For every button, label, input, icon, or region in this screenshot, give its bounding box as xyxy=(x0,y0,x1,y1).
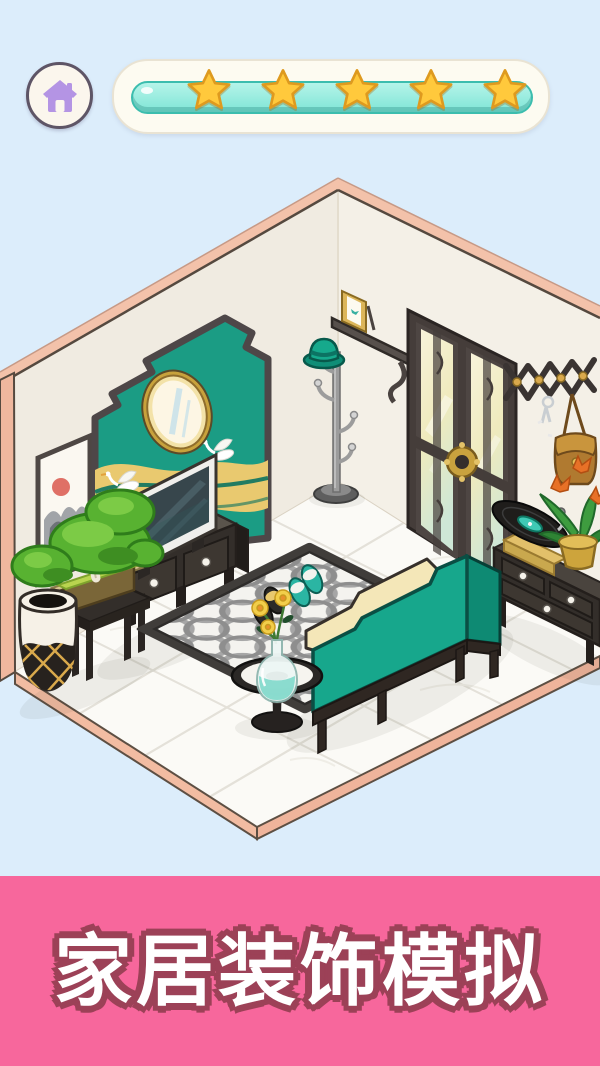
bottom-banner: 家居装饰模拟 xyxy=(0,876,600,1066)
top-bar xyxy=(0,0,600,140)
star-icon xyxy=(260,68,306,113)
home-button[interactable] xyxy=(26,62,93,129)
star-icon xyxy=(334,68,380,113)
game-screen: 家居装饰模拟 xyxy=(0,0,600,1066)
star-icon xyxy=(482,68,528,113)
stars-row xyxy=(114,61,548,132)
wall-end-cap xyxy=(0,373,15,681)
star-icon xyxy=(186,68,232,113)
star-progress-bar xyxy=(112,59,550,134)
banner-title: 家居装饰模拟 xyxy=(54,932,546,1010)
star-icon xyxy=(408,68,454,113)
home-icon xyxy=(40,77,80,115)
